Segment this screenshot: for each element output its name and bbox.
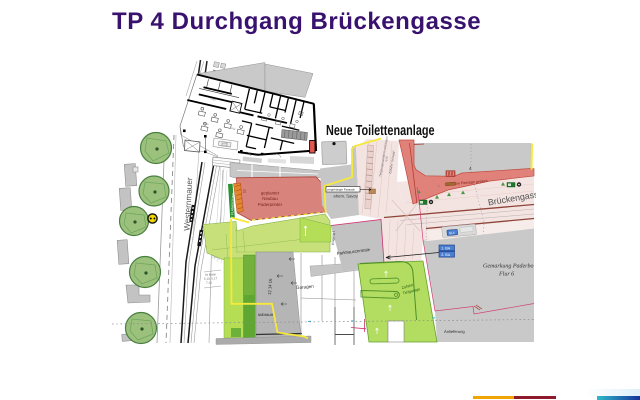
- svg-text:SL4: SL4: [449, 231, 455, 235]
- svg-text:ehem. Savoy: ehem. Savoy: [334, 194, 359, 199]
- svg-text:FLANIERZONE: FLANIERZONE: [230, 193, 235, 216]
- svg-text:Eingang 1: Eingang 1: [331, 230, 336, 245]
- svg-text:Neubau: Neubau: [262, 196, 278, 201]
- svg-text:12 14 16: 12 14 16: [267, 278, 273, 295]
- svg-text:Garagen: Garagen: [296, 284, 315, 290]
- svg-text:Flur 6: Flur 6: [498, 271, 514, 278]
- svg-text:geplanter: geplanter: [261, 191, 280, 196]
- svg-text:subraum: subraum: [258, 312, 275, 317]
- svg-text:Anlieferung: Anlieferung: [444, 329, 465, 334]
- svg-text:4: 4: [469, 166, 472, 171]
- svg-text:7,10: 7,10: [206, 281, 213, 285]
- svg-text:vorgehängte Fassade: vorgehängte Fassade: [327, 188, 355, 192]
- svg-text:10: 10: [243, 189, 247, 193]
- svg-text:+: +: [438, 184, 440, 188]
- svg-text:Paderprinter: Paderprinter: [258, 202, 283, 207]
- svg-text:2. BA: 2. BA: [441, 253, 451, 257]
- svg-text:Gemarkung Paderbo: Gemarkung Paderbo: [483, 263, 534, 270]
- svg-text:1. BA: 1. BA: [441, 247, 451, 251]
